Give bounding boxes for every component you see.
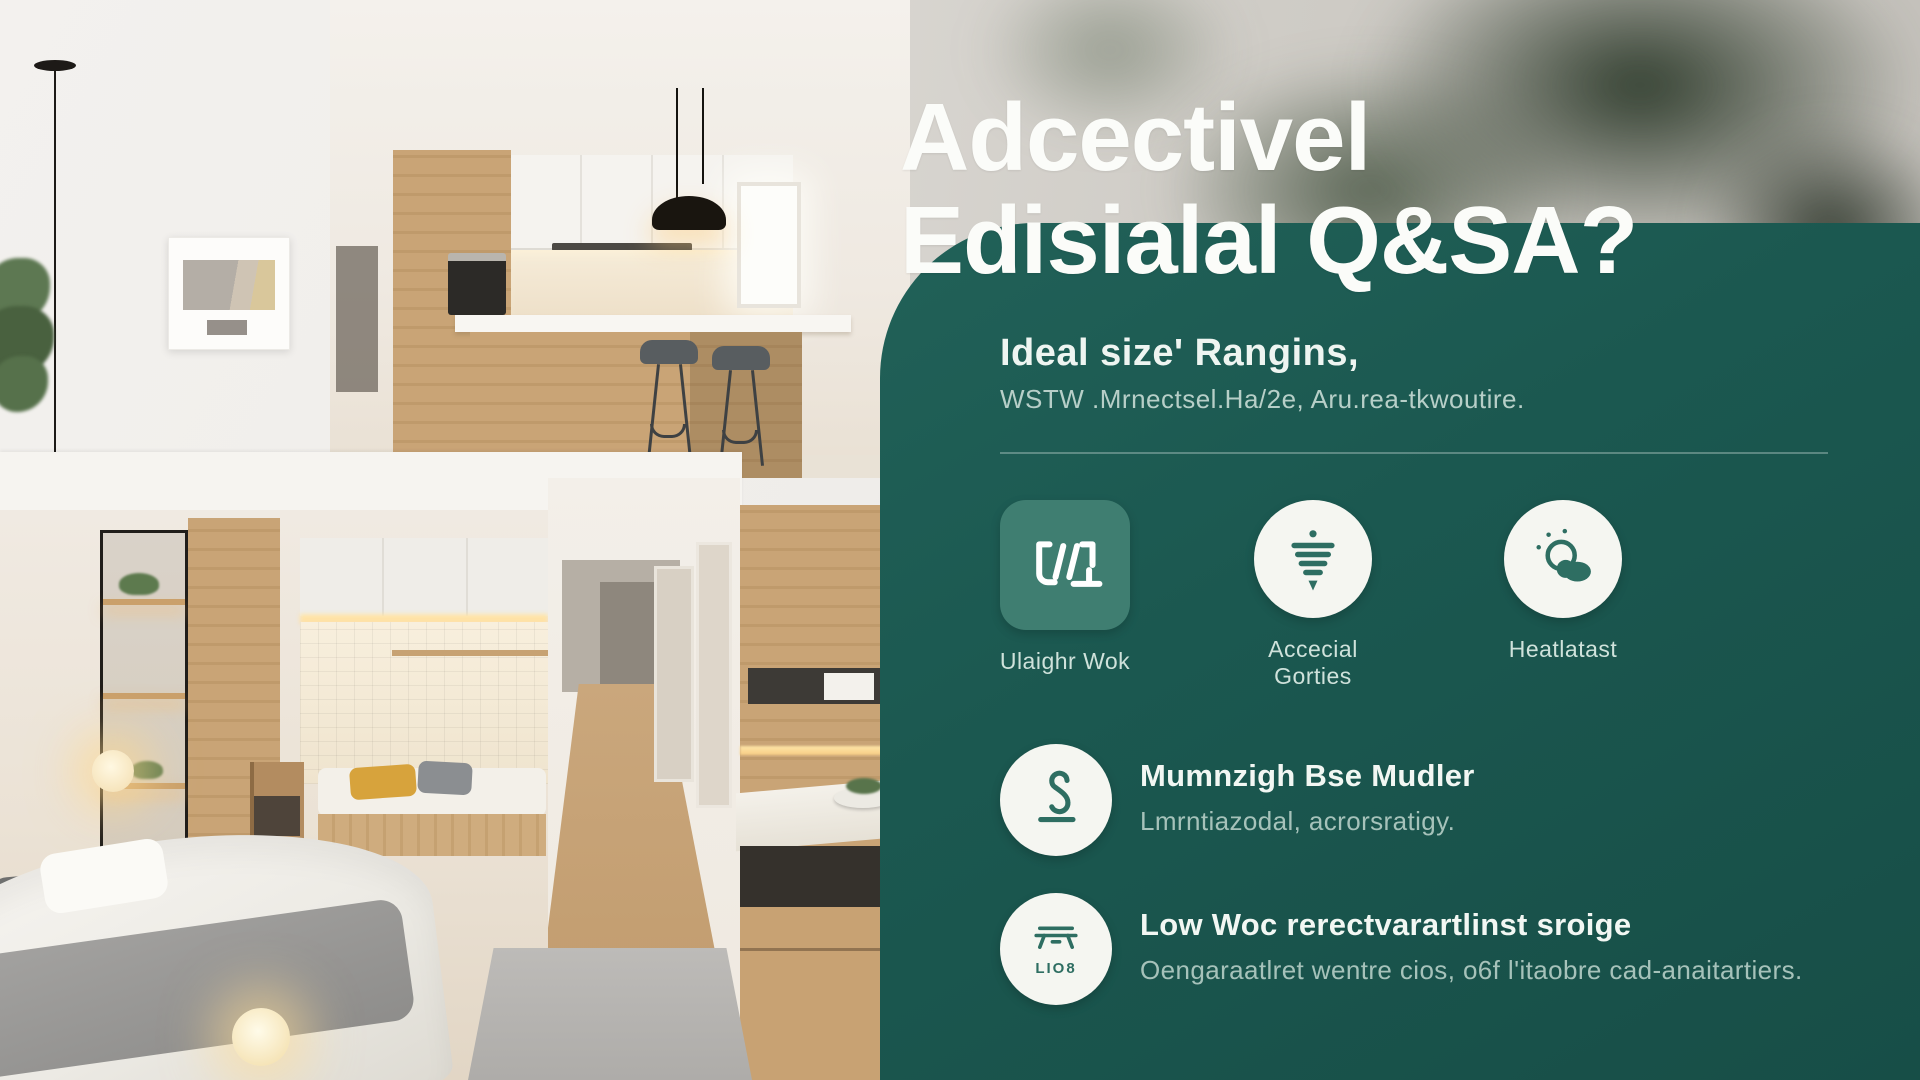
feature-description: Lmrntiazodal, acrorsratigy. [1140, 806, 1475, 837]
island-countertop [455, 315, 851, 332]
table-lamp-icon [92, 750, 134, 792]
mustard-pillow [349, 764, 417, 801]
hallway-door [696, 542, 732, 808]
drawer-seam [740, 948, 900, 951]
feature-title: Low Woc rerectvarartlinst sroige [1140, 907, 1803, 943]
niche-card [824, 673, 874, 700]
poster-title-line2: Edisialal Q&SA? [900, 189, 1860, 292]
feature-text: Low Woc rerectvarartlinst sroige Oengara… [1140, 893, 1803, 986]
kitchen-window [737, 182, 801, 308]
table-icon-caption: LIO8 [1035, 960, 1076, 977]
artwork-image [183, 260, 275, 310]
nightstand-drawer [254, 796, 300, 836]
artwork-plaque [207, 320, 247, 335]
pendant-cord [702, 88, 704, 184]
wall-shelf [392, 650, 548, 656]
feature-text: Mumnzigh Bse Mudler Lmrntiazodal, acrors… [1140, 744, 1475, 837]
feature-description: Oengaraatlret wentre cios, o6f l'itaobre… [1140, 955, 1803, 986]
shelf [103, 599, 185, 605]
poster-title: Adcectivel Edisialal Q&SA? [900, 86, 1860, 292]
bar-stool [712, 346, 770, 370]
houseplant-icon [0, 356, 48, 412]
bar-stool [640, 340, 698, 364]
feature-title: Mumnzigh Bse Mudler [1140, 758, 1475, 794]
kitchenette-drawers [740, 846, 900, 1080]
divider-line [1000, 452, 1828, 454]
feature-row-1: Mumnzigh Bse Mudler Lmrntiazodal, acrors… [1000, 744, 1475, 856]
shelf [103, 693, 185, 699]
shelf-plant-icon [131, 761, 163, 779]
hallway-back-doorway [600, 582, 656, 692]
sofa-outline-icon [1000, 500, 1130, 630]
icon-column-3: Heatlatast [1488, 500, 1638, 663]
wall-niche [336, 246, 378, 392]
open-shelf-unit [100, 530, 188, 890]
built-in-oven [448, 253, 506, 315]
poster: Adcectivel Edisialal Q&SA? Ideal size' R… [0, 0, 1920, 1080]
section-heading: Ideal size' Rangins, [1000, 332, 1359, 375]
sun-cloud-icon [1504, 500, 1622, 618]
gray-pillow [417, 761, 473, 796]
bedroom-upper-cabinets [300, 538, 548, 616]
icon-label: Accecial Gorties [1238, 636, 1388, 690]
icon-label: Ulaighr Wok [990, 648, 1140, 675]
icon-column-2: Accecial Gorties [1238, 500, 1388, 690]
section-subheading: WSTW .Mrnectsel.Ha/2e, Aru.rea-tkwoutire… [1000, 384, 1525, 415]
globe-lamp-icon [232, 1008, 290, 1066]
area-rug [468, 948, 752, 1080]
hook-icon [1000, 744, 1112, 856]
framed-artwork [168, 237, 290, 350]
poster-title-line1: Adcectivel [900, 86, 1860, 189]
shelf-plant-icon [119, 573, 159, 595]
hallway-door [654, 566, 694, 782]
under-cabinet-glow [740, 746, 900, 755]
funnel-icon [1254, 500, 1372, 618]
icon-label: Heatlatast [1488, 636, 1638, 663]
pendant-cord [676, 88, 678, 198]
table-icon: LIO8 [1000, 893, 1112, 1005]
feature-row-2: LIO8 Low Woc rerectvarartlinst sroige Oe… [1000, 893, 1803, 1005]
bowl-greens-icon [846, 778, 882, 794]
icon-column-1: Ulaighr Wok [990, 500, 1140, 675]
tiled-wall [300, 622, 548, 784]
